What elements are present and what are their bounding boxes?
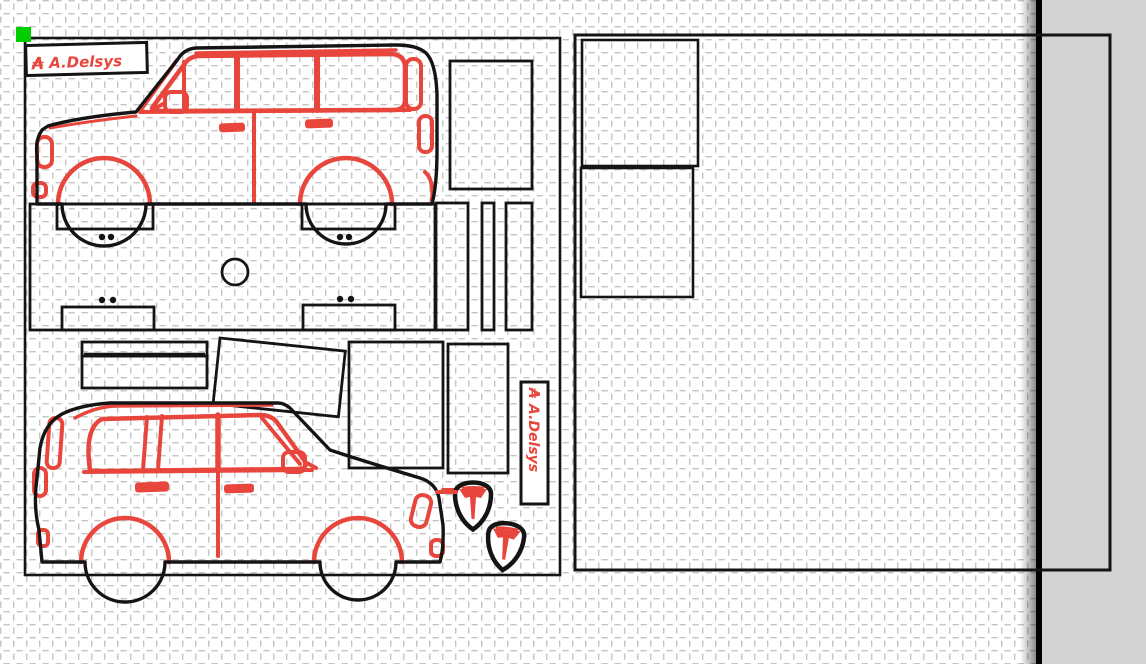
logo-text-vertical: A.Delsys	[525, 403, 541, 472]
piece-logo-plate-horizontal[interactable]: ₳ A.Delsys	[26, 42, 148, 75]
logo-symbol: ₳	[525, 387, 543, 399]
mat-edge-bar	[1036, 0, 1042, 664]
logo-text-horizontal: A.Delsys	[48, 52, 123, 72]
pasteboard-area	[1042, 0, 1146, 664]
mat-edge-shadow	[1020, 0, 1036, 664]
app-window: ₳ A.Delsys ₳ A.Delsys	[0, 0, 1146, 664]
design-canvas: ₳ A.Delsys ₳ A.Delsys	[0, 0, 1146, 664]
logo-symbol: ₳	[30, 54, 45, 74]
selection-handle[interactable]	[16, 27, 31, 42]
piece-logo-plate-vertical[interactable]: ₳ A.Delsys	[521, 382, 548, 504]
